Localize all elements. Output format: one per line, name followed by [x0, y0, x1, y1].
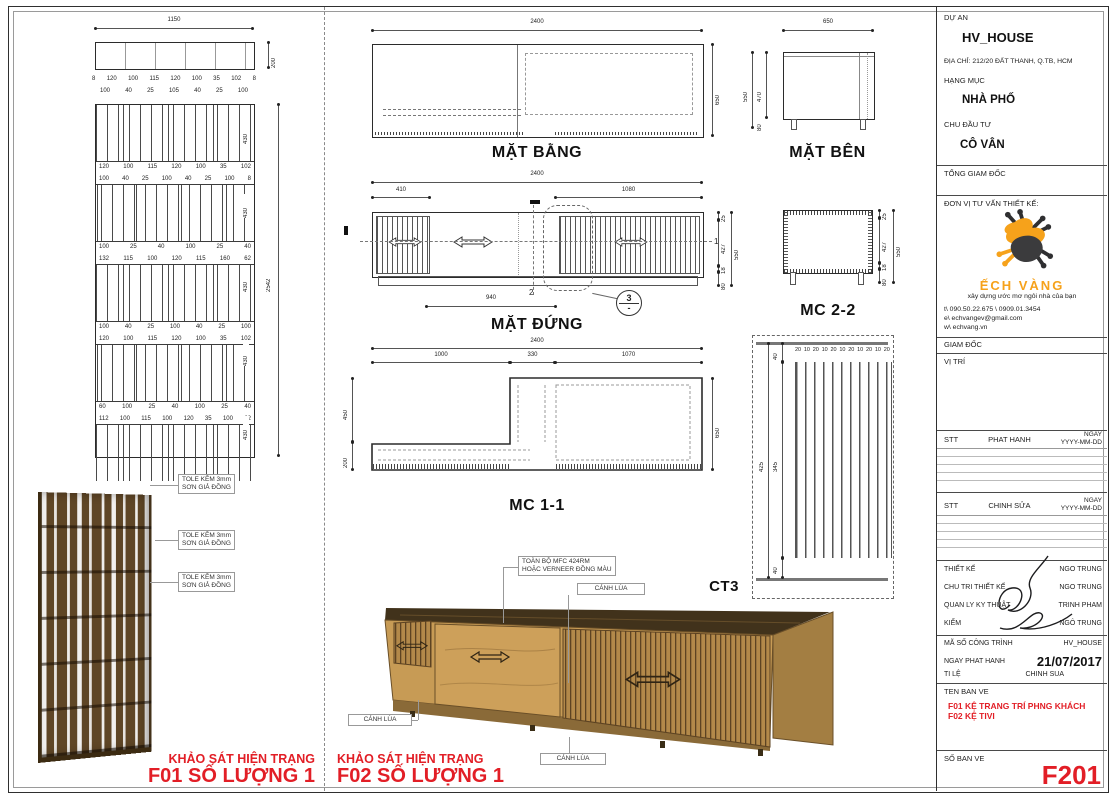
- dim-number: 10: [875, 348, 881, 354]
- dim-label: 1080: [555, 187, 702, 193]
- dim-number: 115: [123, 256, 133, 262]
- door-edge-dotted: [518, 213, 519, 277]
- date-line1: NGAY: [1061, 431, 1102, 439]
- dim-number: 100: [123, 164, 133, 170]
- titleblock-divider: [937, 492, 1107, 493]
- dim-label: 650: [715, 410, 721, 438]
- dim-number: 100: [185, 244, 195, 250]
- titleblock-divider: [937, 750, 1107, 751]
- dim-label: 425: [759, 448, 765, 472]
- dim-number: 100: [162, 416, 172, 422]
- dim-number: 40: [196, 324, 203, 330]
- dim-row: 12010011512010035102: [99, 164, 251, 170]
- dim-number: 10: [857, 348, 863, 354]
- date-line1: NGAY: [1061, 497, 1102, 505]
- dim-number: 10: [839, 348, 845, 354]
- view-title-matdung: MẶT ĐỨNG: [372, 316, 702, 334]
- sliding-door-label: CÁNH LÙA: [348, 714, 412, 726]
- detail-callout: [543, 205, 593, 291]
- dim-number: 35: [213, 76, 220, 82]
- dim-number: 100: [192, 76, 202, 82]
- dim-label: 200: [271, 42, 277, 68]
- dim-label: 410: [372, 187, 430, 193]
- dim-line: [712, 378, 713, 470]
- dim-number: 115: [196, 256, 206, 262]
- dim-number: 40: [122, 176, 129, 182]
- ct3-bottom-rail: [756, 578, 888, 581]
- leader-line: [155, 540, 178, 541]
- dim-row: 2010201020102010201020: [795, 348, 890, 354]
- dim-number: 25: [205, 176, 212, 182]
- titleblock-divider: [937, 165, 1107, 166]
- dim-label: 430: [243, 268, 249, 292]
- titleblock-divider: [937, 683, 1107, 684]
- dim-number: 40: [172, 404, 179, 410]
- meta-label: NGAY PHAT HANH: [944, 658, 1005, 665]
- drawing-name-2: F02 KỆ TIVI: [948, 711, 995, 721]
- view-title-mc11: MC 1-1: [372, 497, 702, 515]
- view-matdung: [372, 212, 704, 278]
- dim-line: [879, 218, 880, 263]
- double-arrow-icon: [609, 237, 653, 247]
- dim-label: 200: [343, 446, 349, 468]
- dim-number: 40: [194, 88, 201, 94]
- dim-line: [782, 343, 783, 362]
- titleblock-divider: [937, 523, 1107, 524]
- leader-line: [503, 567, 504, 623]
- dim-number: 100: [196, 164, 206, 170]
- dim-line: [426, 306, 556, 307]
- material-note: TOÀN BỘ MFC 424RM HOẶC VERNEER ĐỒNG MÀU: [518, 556, 616, 576]
- dim-number: 35: [220, 336, 227, 342]
- titleblock-divider: [937, 531, 1107, 532]
- dim-row: 12010011512010035102: [99, 336, 251, 342]
- dim-row: 10040251054025100: [100, 88, 248, 94]
- titleblock-divider: [937, 195, 1107, 196]
- dim-number: 25: [217, 244, 224, 250]
- material-note-line1: TOÀN BỘ MFC 424RM: [522, 558, 612, 566]
- dim-label: 80: [882, 272, 888, 286]
- dim-number: 100: [196, 336, 206, 342]
- slat-band: [96, 105, 254, 161]
- stt-column: STT: [944, 435, 958, 444]
- dim-number: 20: [831, 348, 837, 354]
- hatch-strip: [555, 132, 699, 135]
- general-director-label: TỔNG GIAM ĐỐC: [944, 169, 1006, 178]
- dim-label: 430: [243, 120, 249, 144]
- dim-junction: 10040251004025100 12010011512010035102: [96, 321, 254, 345]
- detail-reference-bubble: 3 -: [616, 290, 642, 316]
- plan-dashed-line: [383, 109, 521, 110]
- slat-band: [96, 425, 254, 481]
- drawing-name-1: F01 KỆ TRANG TRÍ PHNG KHÁCH: [948, 701, 1085, 711]
- dim-number: 8: [248, 176, 251, 182]
- titleblock-border: [936, 7, 937, 791]
- sheet-number: F201: [937, 760, 1101, 791]
- dim-number: 25: [221, 404, 228, 410]
- project-address: ĐỊA CHỈ: 212/20 ĐẤT THANH, Q.TB, HCM: [944, 58, 1073, 65]
- date-line2: YYYY-MM-DD: [1061, 439, 1102, 447]
- cabinet-right-face: [773, 612, 833, 745]
- dim-label: 345: [773, 448, 779, 472]
- cabinet-leg: [791, 119, 797, 130]
- dim-line: [372, 182, 702, 183]
- titleblock-divider: [937, 464, 1107, 465]
- leader-line: [569, 737, 570, 753]
- dim-label: 427: [721, 230, 727, 254]
- dim-label: 430: [243, 416, 249, 440]
- dim-number: 102: [241, 164, 251, 170]
- dim-number: 115: [148, 336, 158, 342]
- dim-number: 25: [130, 244, 137, 250]
- contact-website: w\ echvang.vn: [944, 324, 987, 331]
- dim-number: 35: [220, 164, 227, 170]
- meta-value: CHINH SUA: [1025, 671, 1064, 678]
- view-title-mc22: MC 2-2: [772, 302, 884, 320]
- dim-line: [372, 197, 430, 198]
- titleblock-divider: [937, 515, 1107, 516]
- material-label-line1: TOLE KẼM 3mm: [182, 532, 231, 540]
- dim-number: 100: [99, 324, 109, 330]
- dim-label: 650: [715, 75, 721, 105]
- leader-line: [150, 485, 178, 486]
- dim-row: 10040251004025100: [99, 324, 251, 330]
- dim-number: 100: [170, 324, 180, 330]
- dim-line: [718, 220, 719, 266]
- dim-line: [268, 42, 269, 68]
- titleblock-divider: [937, 337, 1107, 338]
- dim-number: 102: [231, 76, 241, 82]
- cabinet-leg: [858, 272, 864, 285]
- cabinet-door-middle: [435, 624, 560, 717]
- leader-line: [150, 582, 178, 583]
- dim-number: 100: [122, 404, 132, 410]
- role-label: KIỂM: [944, 620, 961, 627]
- dim-number: 120: [184, 416, 194, 422]
- role-label: THIẾT KẾ: [944, 566, 975, 573]
- dim-number: 25: [149, 404, 156, 410]
- material-label-line2: SƠN GIẢ ĐỒNG: [182, 540, 231, 548]
- sliding-door-label: CÁNH LÙA: [540, 753, 606, 765]
- dim-number: 100: [120, 416, 130, 422]
- dim-line: [782, 362, 783, 558]
- dim-junction: 10025401002540 13211510012011516062: [96, 241, 254, 265]
- slat-band: [96, 185, 254, 241]
- material-note-line2: HOẶC VERNEER ĐỒNG MÀU: [522, 566, 612, 574]
- view-matbang: [372, 44, 704, 138]
- dim-number: 120: [171, 336, 181, 342]
- cabinet-leg: [790, 272, 796, 285]
- dim-line: [718, 272, 719, 286]
- titleblock-divider: [937, 547, 1107, 548]
- client-label: CHU ĐẦU TƯ: [944, 120, 991, 129]
- titleblock-divider: [937, 353, 1107, 354]
- slat-band: [96, 345, 254, 401]
- brand-slogan: xây dựng ước mơ ngôi nhà của bạn: [937, 293, 1107, 300]
- dim-number: 60: [99, 404, 106, 410]
- meta-label: TI LỆ: [944, 671, 961, 678]
- dim-number: 10: [822, 348, 828, 354]
- dim-number: 40: [185, 176, 192, 182]
- dim-line: [352, 378, 353, 442]
- dim-number: 120: [172, 256, 182, 262]
- dim-label: 450: [343, 396, 349, 420]
- material-label: TOLE KẼM 3mm SƠN GIẢ ĐỒNG: [178, 530, 235, 550]
- dim-label: 2400: [372, 171, 702, 177]
- ct3-slat-detail: [795, 362, 892, 558]
- brand-name: ẾCH VÀNG: [937, 278, 1107, 293]
- dim-line: [879, 269, 880, 283]
- dim-line: [555, 197, 702, 198]
- location-label: VỊ TRÍ: [944, 357, 965, 366]
- dim-label: 550: [743, 72, 749, 102]
- dim-number: 100: [195, 404, 205, 410]
- dim-number: 62: [244, 256, 251, 262]
- date-line2: YYYY-MM-DD: [1061, 505, 1102, 513]
- issue-column: PHAT HANH: [988, 435, 1031, 444]
- plinth: [378, 276, 698, 286]
- detail-number: 3: [626, 293, 631, 303]
- titleblock-divider: [937, 635, 1107, 636]
- category-label: HẠNG MỤC: [944, 76, 985, 85]
- dim-number: 8: [253, 76, 256, 82]
- item-title-f01: F01 SỐ LƯỢNG 1: [120, 765, 315, 788]
- dim-row: 10025401002540: [99, 244, 251, 250]
- dim-label: 470: [757, 72, 763, 102]
- dim-label: 427: [882, 228, 888, 252]
- dim-number: 10: [804, 348, 810, 354]
- consultant-label: ĐƠN VỊ TƯ VẤN THIẾT KẾ:: [944, 199, 1039, 208]
- dim-row: 8120100115120100351028: [92, 76, 256, 82]
- dim-number: 120: [107, 76, 117, 82]
- dim-label: 25: [882, 204, 888, 220]
- dim-line: [278, 104, 279, 456]
- edit-table-header: STT CHINH SỬA NGAY YYYY-MM-DD: [944, 496, 1102, 514]
- dim-number: 25: [147, 88, 154, 94]
- view-mc11: [340, 340, 720, 480]
- leader-line: [568, 595, 569, 683]
- date-column: NGAY YYYY-MM-DD: [1061, 431, 1102, 447]
- leader-line: [503, 567, 518, 568]
- survey-note-f02: KHẢO SÁT HIỆN TRẠNG: [337, 752, 484, 766]
- dim-number: 120: [99, 336, 109, 342]
- dim-line: [372, 30, 702, 31]
- dim-line: [731, 212, 732, 286]
- dim-label: 430: [243, 342, 249, 366]
- dim-number: 100: [99, 244, 109, 250]
- centerline: [360, 241, 712, 242]
- sliding-door-label: CÁNH LÙA: [577, 583, 645, 595]
- dim-number: 120: [171, 164, 181, 170]
- dim-line: [712, 44, 713, 136]
- dim-number: 120: [99, 164, 109, 170]
- dim-number: 25: [142, 176, 149, 182]
- drawing-sheet: 1150 200 8120100115120100351028 10040251…: [0, 0, 1119, 800]
- dim-number: 100: [128, 76, 138, 82]
- dim-number: 120: [170, 76, 180, 82]
- double-arrow-icon: [387, 237, 423, 247]
- dim-label: 430: [243, 194, 249, 218]
- material-label-line1: TOLE KẼM 3mm: [182, 476, 231, 484]
- dim-number: 20: [866, 348, 872, 354]
- dim-number: 40: [158, 244, 165, 250]
- meta-row: TI LỆ CHINH SUA: [944, 671, 1064, 678]
- dim-label: 25: [721, 206, 727, 222]
- dim-number: 20: [795, 348, 801, 354]
- titleblock-divider: [937, 448, 1107, 449]
- slat-band: [96, 265, 254, 321]
- dim-row: 1121001151001203510062: [99, 416, 251, 422]
- dim-label: 80: [721, 276, 727, 290]
- section-hatch: [784, 211, 788, 273]
- signature-scribble: [990, 550, 1085, 635]
- drawing-name-label: TEN BAN VE: [944, 687, 989, 696]
- project-name: HV_HOUSE: [962, 30, 1034, 45]
- dim-number: 100: [224, 176, 234, 182]
- plan-dashed-line: [383, 115, 521, 116]
- hatch-strip: [375, 132, 525, 135]
- dim-label: 40: [773, 344, 779, 360]
- dim-label: 40: [773, 558, 779, 574]
- meta-row: MÃ SỐ CÔNG TRÌNH HV_HOUSE: [944, 640, 1102, 647]
- director-label: GIAM ĐỐC: [944, 340, 982, 349]
- dim-label: 650: [783, 19, 873, 25]
- dim-number: 100: [162, 176, 172, 182]
- dim-number: 100: [223, 416, 233, 422]
- dim-number: 132: [99, 256, 109, 262]
- dim-number: 100: [147, 256, 157, 262]
- material-label-line2: SƠN GIẢ ĐỒNG: [182, 582, 231, 590]
- material-label: TOLE KẼM 3mm SƠN GIẢ ĐỒNG: [178, 572, 235, 592]
- survey-note-f01: KHẢO SÁT HIỆN TRẠNG: [150, 752, 315, 766]
- panel-divider: [324, 7, 325, 791]
- meta-label: MÃ SỐ CÔNG TRÌNH: [944, 640, 1013, 647]
- date-column: NGAY YYYY-MM-DD: [1061, 497, 1102, 513]
- dim-line: [783, 30, 873, 31]
- titleblock-divider: [937, 472, 1107, 473]
- dim-number: 35: [205, 416, 212, 422]
- dim-number: 100: [238, 88, 248, 94]
- double-arrow-icon: [447, 236, 499, 248]
- plan-division: [517, 45, 518, 137]
- detail-sheet: -: [628, 303, 631, 313]
- meta-row: NGAY PHAT HANH 21/07/2017: [944, 654, 1102, 669]
- dim-label: 550: [896, 233, 902, 257]
- dim-number: 25: [218, 324, 225, 330]
- dim-line: [352, 442, 353, 470]
- dim-number: 20: [884, 348, 890, 354]
- dim-label: 1150: [95, 17, 253, 23]
- dim-number: 20: [848, 348, 854, 354]
- titleblock-divider: [937, 480, 1107, 481]
- dim-line: [95, 28, 253, 29]
- dim-junction: 6010025401002540 1121001151001203510062: [96, 401, 254, 425]
- material-label-line2: SƠN GIẢ ĐỒNG: [182, 484, 231, 492]
- contact-email: e\ echvangev@gmail.com: [944, 315, 1022, 322]
- f01-elevation: 12010011512010035102 100402510040251008 …: [95, 104, 255, 458]
- dim-number: 115: [148, 164, 158, 170]
- category-value: NHÀ PHỐ: [962, 94, 1015, 106]
- dim-line: [752, 52, 753, 128]
- dim-line: [893, 210, 894, 283]
- dim-label: 940: [426, 295, 556, 301]
- dim-number: 40: [244, 244, 251, 250]
- dim-number: 115: [141, 416, 151, 422]
- project-label: DỰ AN: [944, 13, 968, 22]
- dim-line: [768, 343, 769, 578]
- view-matben: [783, 52, 875, 120]
- dim-line: [782, 558, 783, 578]
- section-hatch: [784, 211, 872, 215]
- dim-number: 40: [125, 88, 132, 94]
- dim-line: [766, 52, 767, 118]
- dim-number: 160: [220, 256, 230, 262]
- dim-label: 2542: [266, 262, 272, 292]
- titleblock-divider: [937, 539, 1107, 540]
- section-hatch: [868, 211, 872, 273]
- view-title-matbang: MẶT BẰNG: [372, 144, 702, 162]
- issue-date: 21/07/2017: [1037, 654, 1102, 669]
- side-division: [859, 53, 860, 119]
- dim-number: 25: [216, 88, 223, 94]
- dim-number: 112: [99, 416, 109, 422]
- contact-phone: t\ 090.50.22.675 \ 0909.01.3454: [944, 306, 1040, 313]
- dim-number: 100: [123, 336, 133, 342]
- stt-column: STT: [944, 501, 958, 510]
- dim-label: 80: [757, 115, 763, 131]
- section-marker: [530, 200, 540, 204]
- dim-number: 100: [99, 176, 109, 182]
- client-value: CÔ VÂN: [960, 139, 1005, 151]
- dim-row: 6010025401002540: [99, 404, 251, 410]
- dim-number: 100: [100, 88, 110, 94]
- dim-number: 100: [241, 324, 251, 330]
- dim-label: 550: [734, 236, 740, 260]
- side-top-line: [784, 56, 874, 57]
- edit-column: CHINH SỬA: [988, 501, 1030, 510]
- dim-number: 20: [813, 348, 819, 354]
- dim-junction: 12010011512010035102 100402510040251008: [96, 161, 254, 185]
- meta-value: HV_HOUSE: [1063, 640, 1102, 647]
- side-dotted-line: [867, 53, 868, 119]
- f01-screen-3d-render: [38, 492, 152, 763]
- view-title-ct3: CT3: [700, 578, 748, 595]
- material-label: TOLE KẼM 3mm SƠN GIẢ ĐỒNG: [178, 474, 235, 494]
- frog-logo: [988, 209, 1054, 275]
- dim-row: 100402510040251008: [99, 176, 251, 182]
- view-title-matben: MẶT BÊN: [770, 144, 885, 162]
- f01-plan-view: [95, 42, 255, 70]
- material-label-line1: TOLE KẼM 3mm: [182, 574, 231, 582]
- dim-number: 105: [169, 88, 179, 94]
- dim-number: 40: [125, 324, 132, 330]
- dim-label: 18: [882, 257, 888, 271]
- issue-table-header: STT PHAT HANH NGAY YYYY-MM-DD: [944, 430, 1102, 448]
- dim-label: 18: [721, 260, 727, 274]
- titleblock-divider: [937, 456, 1107, 457]
- plan-dashed-inset: [525, 53, 693, 115]
- dim-number: 40: [244, 404, 251, 410]
- dim-number: 115: [149, 76, 159, 82]
- cabinet-leg: [860, 119, 866, 130]
- dim-number: 25: [147, 324, 154, 330]
- dim-label: 2400: [372, 19, 702, 25]
- view-mc22: [783, 210, 873, 274]
- item-title-f02: F02 SỐ LƯỢNG 1: [337, 765, 504, 788]
- leader-line: [418, 700, 419, 720]
- dim-number: 8: [92, 76, 95, 82]
- dim-row: 13211510012011516062: [99, 256, 251, 262]
